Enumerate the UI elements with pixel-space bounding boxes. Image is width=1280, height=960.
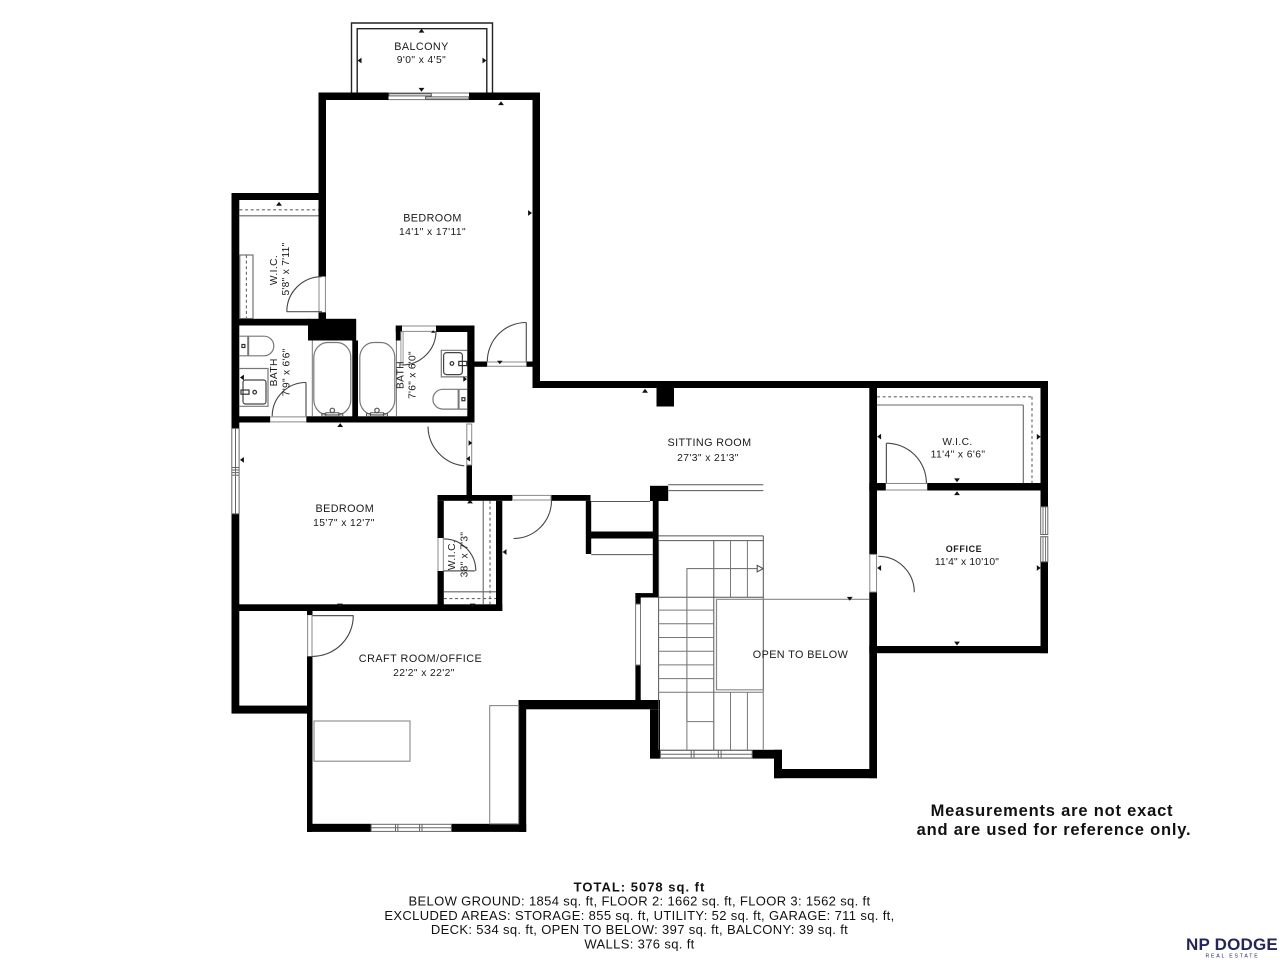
svg-text:BEDROOM: BEDROOM <box>403 213 462 225</box>
svg-text:11'4" x 6'6": 11'4" x 6'6" <box>931 450 986 461</box>
svg-text:14'1" x 17'11": 14'1" x 17'11" <box>399 227 466 238</box>
svg-text:TOTAL: 5078 sq. ft: TOTAL: 5078 sq. ft <box>574 879 706 894</box>
svg-text:22'2" x 22'2": 22'2" x 22'2" <box>393 668 455 679</box>
svg-text:BELOW GROUND: 1854 sq. ft, FLO: BELOW GROUND: 1854 sq. ft, FLOOR 2: 1662… <box>409 894 871 909</box>
svg-text:EXCLUDED AREAS: STORAGE: 855 s: EXCLUDED AREAS: STORAGE: 855 sq. ft, UTI… <box>384 908 894 923</box>
svg-text:SITTING ROOM: SITTING ROOM <box>668 437 752 449</box>
svg-text:DECK: 534 sq. ft, OPEN TO BELO: DECK: 534 sq. ft, OPEN TO BELOW: 397 sq.… <box>431 922 848 937</box>
svg-text:OPEN TO BELOW: OPEN TO BELOW <box>753 649 849 661</box>
svg-text:15'7" x 12'7": 15'7" x 12'7" <box>313 518 375 529</box>
svg-text:27'3" x 21'3": 27'3" x 21'3" <box>677 453 739 464</box>
svg-text:OFFICE: OFFICE <box>946 544 983 554</box>
svg-text:W.I.C.: W.I.C. <box>269 255 280 285</box>
svg-text:and are used for reference onl: and are used for reference only. <box>917 821 1192 839</box>
svg-text:38" x 7'3": 38" x 7'3" <box>460 532 471 578</box>
svg-text:REAL ESTATE: REAL ESTATE <box>1205 954 1259 960</box>
svg-text:NP DODGE: NP DODGE <box>1186 935 1278 954</box>
svg-text:9'0" x 4'5": 9'0" x 4'5" <box>397 55 446 66</box>
svg-text:11'4" x 10'10": 11'4" x 10'10" <box>935 557 999 568</box>
svg-text:W.I.C.: W.I.C. <box>942 437 972 448</box>
svg-text:7'6" x 6'0": 7'6" x 6'0" <box>408 351 419 399</box>
svg-text:BEDROOM: BEDROOM <box>316 503 375 515</box>
svg-text:5'8" x 7'11": 5'8" x 7'11" <box>281 242 292 295</box>
svg-text:Measurements are not exact: Measurements are not exact <box>931 802 1174 820</box>
svg-text:BALCONY: BALCONY <box>394 41 448 53</box>
svg-text:CRAFT ROOM/OFFICE: CRAFT ROOM/OFFICE <box>359 653 482 665</box>
svg-text:W.I.C.: W.I.C. <box>447 540 458 570</box>
svg-text:WALLS: 376 sq. ft: WALLS: 376 sq. ft <box>584 937 694 952</box>
svg-text:7'9" x 6'6": 7'9" x 6'6" <box>282 348 293 396</box>
svg-text:BATH: BATH <box>395 361 406 389</box>
svg-text:BATH: BATH <box>269 358 280 386</box>
